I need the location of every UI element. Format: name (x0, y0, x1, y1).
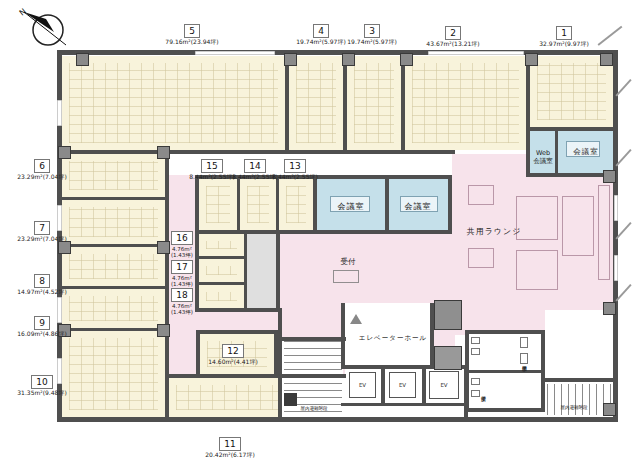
womens-toilet-label: 女子便所 (480, 380, 486, 404)
unit-2-number: 2 (445, 26, 461, 40)
room-4 (289, 56, 343, 150)
lounge-table (468, 248, 494, 268)
toilet-fixture (471, 378, 480, 385)
unit-15-label: 15 8.44m²(2.55坪) (167, 155, 257, 181)
unit-1-label: 1 32.97m²(9.97坪) (519, 22, 609, 48)
shared-lounge-label: 共用ラウンジ (454, 226, 534, 237)
reception-label: 受付 (333, 257, 363, 267)
lounge-table (468, 185, 494, 205)
meeting-room-label: 会議室 (321, 201, 381, 212)
mens-toilet-label: 男子便所 (521, 350, 527, 374)
room-5 (62, 56, 285, 150)
unit-6-area: 23.29m²(7.04坪) (0, 174, 87, 181)
elevator-label: EV (429, 382, 459, 388)
toilet-fixture (471, 337, 480, 344)
room-17 (199, 259, 244, 282)
lounge-sofa (562, 196, 594, 256)
unit-5-number: 5 (184, 24, 200, 38)
elevator-label: EV (349, 382, 376, 388)
unit-7-area: 23.29m²(7.04坪) (0, 236, 87, 243)
stairs-left-label: 屋内避難階段 (291, 405, 338, 410)
unit-18-area-line2: (1.43坪) (164, 309, 200, 315)
elevator-label: EV (389, 382, 416, 388)
unit-9-number: 9 (34, 316, 50, 330)
shaft-area (247, 234, 276, 308)
unit-10-number: 10 (31, 375, 52, 389)
floor-plan: N (0, 0, 640, 464)
unit-5-area: 79.16m²(23.94坪) (147, 39, 237, 46)
unit-8-number: 8 (34, 274, 50, 288)
unit-3-area: 19.74m²(5.97坪) (327, 39, 417, 46)
room-1 (530, 56, 613, 127)
unit-7-number: 7 (34, 221, 50, 235)
unit-10-area: 31.35m²(9.48坪) (0, 390, 87, 397)
unit-16-number: 16 (171, 231, 192, 245)
stairs-right-label: 屋内避難階段 (551, 404, 598, 409)
room-16 (199, 234, 244, 256)
room-3 (347, 56, 401, 150)
lounge-counter (598, 185, 610, 280)
unit-7-label: 7 23.29m²(7.04坪) (0, 217, 87, 243)
compass-icon: N (18, 4, 70, 50)
unit-18-number: 18 (171, 288, 192, 302)
meeting-room-label: 会議室 (556, 147, 616, 157)
unit-8-area: 14.97m²(4.52坪) (0, 289, 87, 296)
unit-11-number: 11 (219, 437, 240, 451)
toilet-fixture (520, 337, 528, 348)
unit-9-area: 16.09m²(4.86坪) (0, 331, 87, 338)
unit-1-number: 1 (556, 26, 572, 40)
unit-11-area: 20.42m²(6.17坪) (185, 452, 275, 459)
unit-11-label: 11 20.42m²(6.17坪) (185, 433, 275, 459)
unit-3-label: 3 19.74m²(5.97坪) (327, 20, 417, 46)
unit-17-label: 17 4.76m² (1.43坪) (164, 256, 200, 287)
lounge-sofa (516, 250, 558, 290)
unit-3-number: 3 (364, 24, 380, 38)
web-meeting-room-label: Web 会議室 (527, 150, 559, 166)
unit-12-label: 12 14.60m²(4.41坪) (188, 340, 278, 366)
unit-2-label: 2 43.67m²(13.21坪) (408, 22, 498, 48)
room-2 (405, 56, 526, 150)
unit-15-area: 8.44m²(2.55坪) (167, 174, 257, 181)
elevator-hall-marker-icon (350, 314, 362, 324)
unit-8-label: 8 14.97m²(4.52坪) (0, 270, 87, 296)
meeting-room-label: 会議室 (388, 201, 448, 212)
unit-2-area: 43.67m²(13.21坪) (408, 41, 498, 48)
unit-16-label: 16 4.76m² (1.43坪) (164, 227, 200, 258)
toilet-fixture (471, 348, 480, 355)
unit-12-number: 12 (222, 344, 243, 358)
unit-15-number: 15 (201, 159, 222, 173)
stairs-right-steps (547, 384, 611, 415)
unit-1-area: 32.97m²(9.97坪) (519, 41, 609, 48)
unit-6-number: 6 (34, 159, 50, 173)
room-13 (279, 179, 313, 230)
unit-9-label: 9 16.09m²(4.86坪) (0, 312, 87, 338)
reception-counter (333, 270, 359, 283)
web-meeting-line2: 会議室 (527, 158, 559, 166)
toilet-fixture (471, 390, 480, 397)
unit-5-label: 5 79.16m²(23.94坪) (147, 20, 237, 46)
unit-17-number: 17 (171, 260, 192, 274)
compass-north-label: N (18, 7, 28, 18)
unit-6-label: 6 23.29m²(7.04坪) (0, 155, 87, 181)
elevator-hall-label: エレベーターホール (343, 334, 443, 343)
unit-10-label: 10 31.35m²(9.48坪) (0, 371, 87, 397)
unit-12-area: 14.60m²(4.41坪) (188, 359, 278, 366)
room-15 (199, 179, 237, 230)
unit-18-label: 18 4.76m² (1.43坪) (164, 284, 200, 315)
room-14 (240, 179, 276, 230)
room-18 (199, 285, 244, 308)
